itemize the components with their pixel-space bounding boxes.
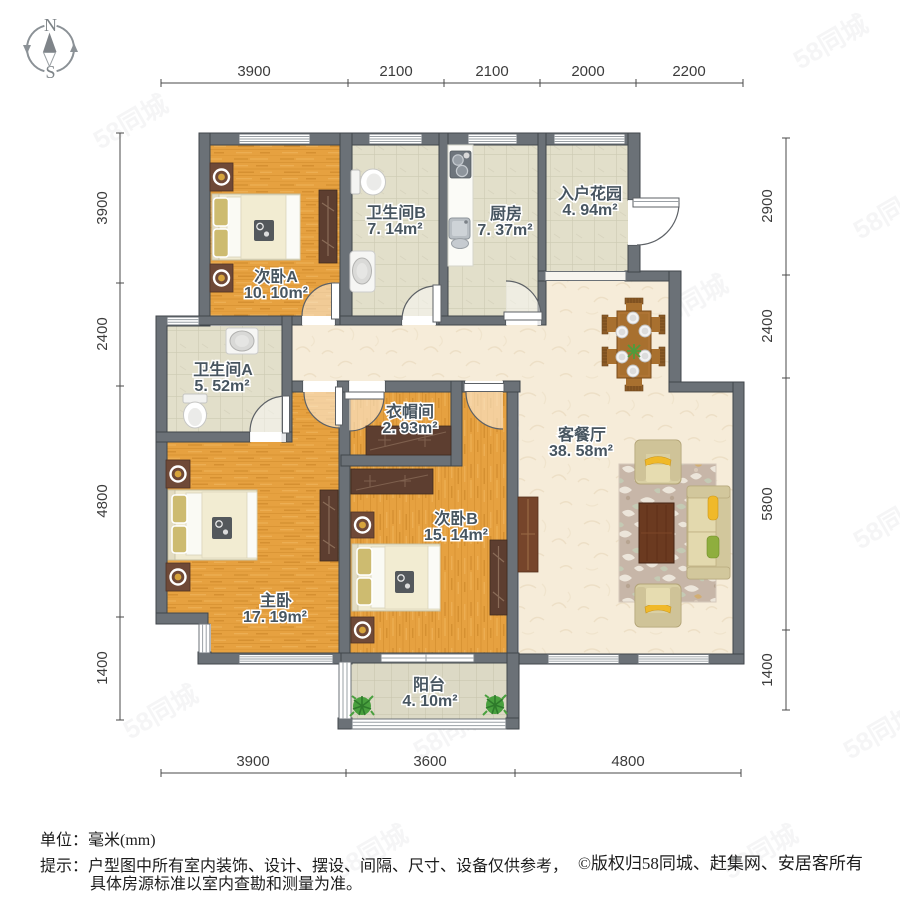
svg-text:3900: 3900 bbox=[237, 63, 270, 80]
svg-text:卫生间A: 卫生间A bbox=[193, 360, 253, 379]
svg-text:2100: 2100 bbox=[379, 63, 412, 80]
svg-text:2. 93m²: 2. 93m² bbox=[382, 420, 437, 437]
svg-text:N: N bbox=[44, 15, 57, 35]
svg-text:客餐厅: 客餐厅 bbox=[558, 425, 606, 444]
svg-text:1400: 1400 bbox=[759, 653, 776, 686]
svg-text:4800: 4800 bbox=[94, 484, 111, 517]
svg-text:3600: 3600 bbox=[413, 753, 446, 770]
svg-text:主卧: 主卧 bbox=[260, 591, 292, 610]
svg-text:次卧B: 次卧B bbox=[434, 509, 478, 528]
svg-text:衣帽间: 衣帽间 bbox=[386, 402, 434, 421]
svg-text:2000: 2000 bbox=[571, 63, 604, 80]
svg-text:15. 14m²: 15. 14m² bbox=[424, 527, 488, 544]
svg-text:4. 94m²: 4. 94m² bbox=[562, 202, 617, 219]
svg-text:3900: 3900 bbox=[236, 753, 269, 770]
svg-text:具体房源标准以室内查勘和测量为准。: 具体房源标准以室内查勘和测量为准。 bbox=[90, 875, 362, 893]
svg-text:卫生间B: 卫生间B bbox=[366, 203, 426, 222]
svg-text:7. 37m²: 7. 37m² bbox=[477, 222, 532, 239]
svg-text:10. 10m²: 10. 10m² bbox=[244, 285, 308, 302]
svg-text:4. 10m²: 4. 10m² bbox=[402, 693, 457, 710]
svg-text:入户花园: 入户花园 bbox=[558, 184, 622, 203]
svg-text:38. 58m²: 38. 58m² bbox=[549, 443, 613, 460]
svg-text:3900: 3900 bbox=[94, 191, 111, 224]
svg-text:2400: 2400 bbox=[94, 317, 111, 350]
svg-text:7. 14m²: 7. 14m² bbox=[367, 221, 422, 238]
svg-text:©版权归58同城、赶集网、安居客所有: ©版权归58同城、赶集网、安居客所有 bbox=[578, 854, 863, 873]
svg-text:17. 19m²: 17. 19m² bbox=[243, 609, 307, 626]
svg-text:4800: 4800 bbox=[611, 753, 644, 770]
svg-text:2200: 2200 bbox=[672, 63, 705, 80]
svg-text:5800: 5800 bbox=[759, 487, 776, 520]
svg-text:1400: 1400 bbox=[94, 651, 111, 684]
svg-text:次卧A: 次卧A bbox=[254, 267, 298, 286]
svg-text:厨房: 厨房 bbox=[490, 204, 522, 223]
svg-text:2100: 2100 bbox=[475, 63, 508, 80]
svg-text:提示：户型图中所有室内装饰、设计、摆设、间隔、尺寸、设备仅供: 提示：户型图中所有室内装饰、设计、摆设、间隔、尺寸、设备仅供参考， bbox=[40, 857, 568, 875]
svg-text:2400: 2400 bbox=[759, 309, 776, 342]
svg-text:5. 52m²: 5. 52m² bbox=[194, 378, 249, 395]
svg-text:单位：毫米(mm): 单位：毫米(mm) bbox=[40, 830, 156, 849]
svg-text:2900: 2900 bbox=[759, 189, 776, 222]
svg-text:阳台: 阳台 bbox=[413, 675, 445, 694]
